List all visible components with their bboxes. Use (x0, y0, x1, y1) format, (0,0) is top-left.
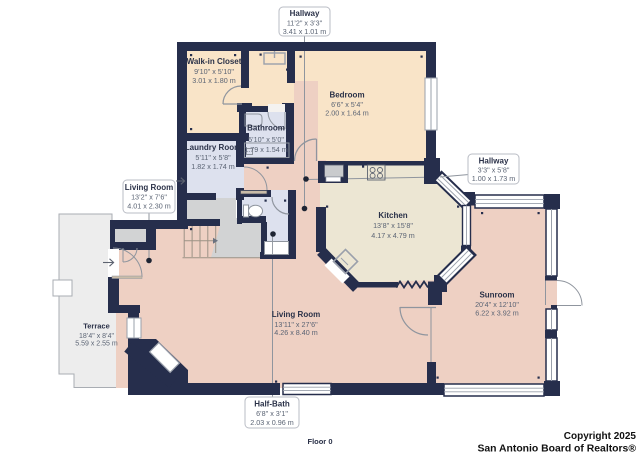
svg-text:9’10" x 5’10": 9’10" x 5’10" (194, 67, 234, 76)
svg-text:1.00 x 1.73 m: 1.00 x 1.73 m (472, 174, 516, 183)
svg-text:Bedroom: Bedroom (329, 91, 364, 100)
svg-text:San Antonio Board of Realtors®: San Antonio Board of Realtors® (477, 444, 636, 453)
svg-text:Sunroom: Sunroom (479, 291, 514, 300)
svg-text:Living Room: Living Room (272, 310, 320, 319)
svg-text:Hallway: Hallway (290, 9, 320, 18)
svg-text:13’8" x 15’8": 13’8" x 15’8" (373, 221, 413, 230)
svg-text:4.26 x 8.40 m: 4.26 x 8.40 m (274, 328, 318, 337)
svg-text:Living Room: Living Room (125, 183, 173, 192)
svg-text:Hallway: Hallway (479, 157, 509, 166)
svg-text:Terrace: Terrace (83, 322, 110, 331)
svg-text:Laundry Room: Laundry Room (185, 143, 241, 152)
svg-text:4.01 x 2.30 m: 4.01 x 2.30 m (127, 202, 171, 211)
svg-text:Copyright 2025: Copyright 2025 (564, 431, 637, 442)
svg-text:1.79 x 1.54 m: 1.79 x 1.54 m (244, 145, 288, 154)
svg-text:Kitchen: Kitchen (378, 211, 407, 220)
svg-text:6.22 x 3.92 m: 6.22 x 3.92 m (475, 309, 519, 318)
svg-text:4.17 x 4.79 m: 4.17 x 4.79 m (371, 231, 415, 240)
svg-text:13’2" x 7’6": 13’2" x 7’6" (131, 193, 167, 202)
svg-text:3.01 x 1.80 m: 3.01 x 1.80 m (192, 76, 236, 85)
svg-text:5’11" x 5’8": 5’11" x 5’8" (195, 153, 231, 162)
svg-text:Half-Bath: Half-Bath (254, 400, 290, 409)
svg-text:2.03 x 0.96 m: 2.03 x 0.96 m (250, 418, 294, 427)
svg-text:Walk-in Closet: Walk-in Closet (187, 57, 242, 66)
svg-text:5.59 x 2.55 m: 5.59 x 2.55 m (75, 341, 118, 348)
svg-text:Bathroom: Bathroom (247, 124, 285, 133)
svg-text:Floor 0: Floor 0 (307, 437, 332, 446)
svg-text:3.41 x 1.01 m: 3.41 x 1.01 m (283, 27, 327, 36)
svg-text:18’4" x 8’4": 18’4" x 8’4" (79, 333, 114, 340)
svg-text:5’10" x 5’0": 5’10" x 5’0" (248, 135, 284, 144)
svg-text:1.82 x 1.74 m: 1.82 x 1.74 m (191, 162, 235, 171)
svg-text:2.00 x 1.64 m: 2.00 x 1.64 m (325, 109, 369, 118)
svg-text:6’8" x 3’1": 6’8" x 3’1" (256, 409, 288, 418)
